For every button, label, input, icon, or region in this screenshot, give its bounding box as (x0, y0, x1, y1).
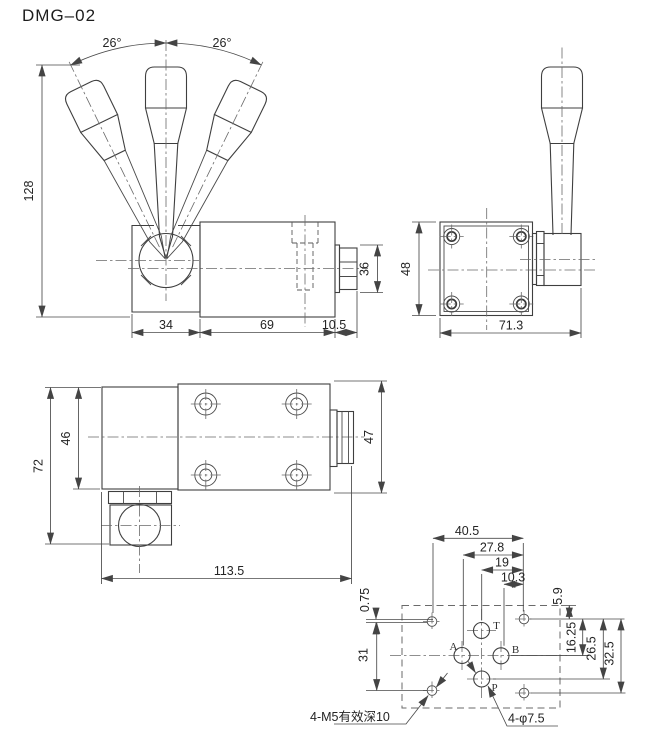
dim-mount-27-8: 27.8 (480, 541, 504, 555)
dim-mount-5-9: 5.9 (551, 587, 565, 604)
dim-72: 72 (32, 388, 110, 545)
dims-mounting-left: 0.75 31 (357, 588, 434, 691)
dim-mount-40-5: 40.5 (455, 524, 479, 538)
dim-front-height: 128 (22, 181, 36, 202)
dim-mount-32-5: 32.5 (603, 641, 617, 665)
lever-phantom-right (148, 53, 281, 268)
port-label-a: A (450, 641, 458, 653)
nut-top (330, 410, 354, 467)
port-circles: T A B P (450, 620, 520, 694)
dim-side-width: 71.3 (499, 319, 523, 333)
dim-top-body: 46 (59, 432, 73, 446)
nut-side (533, 232, 545, 286)
dim-mount-10-3: 10.3 (501, 571, 525, 585)
lever-side (542, 48, 583, 236)
top-view: 72 46 47 113.5 (32, 381, 388, 584)
dims-mounting-top: 40.5 27.8 19 10.3 (433, 524, 525, 646)
dim-46: 46 (59, 388, 100, 490)
lever-mount-side (520, 234, 598, 286)
dim-113-5: 113.5 (102, 466, 352, 584)
dim-top-nut: 47 (362, 430, 376, 444)
valve-body-side (428, 208, 598, 330)
dim-block-width: 34 (159, 318, 173, 332)
valve-body-top (88, 384, 364, 490)
technical-drawing-page: DMG–02 (0, 0, 650, 745)
port-label-p: P (491, 682, 497, 694)
port-label-t: T (493, 620, 500, 632)
dim-body-width: 69 (260, 318, 274, 332)
pivot-housing-top (101, 486, 180, 573)
mounting-pattern-view: T A B P 40.5 27.8 19 10.3 (310, 524, 626, 726)
dim-mount-31: 31 (357, 648, 371, 662)
dim-angle-right: 26° (213, 36, 232, 50)
front-view: 26° 26° 128 36 34 69 10.5 (22, 36, 383, 338)
dim-top-overall: 72 (32, 459, 46, 473)
dim-side-height: 48 (399, 262, 413, 276)
dim-48: 48 (399, 222, 436, 316)
page-title: DMG–02 (22, 6, 96, 25)
label-port-holes: 4-φ7.5 (508, 712, 545, 726)
lever-phantom-left (51, 53, 184, 268)
callout-m5: 4-M5有效深10 (310, 673, 448, 724)
valve-body-front (128, 215, 368, 327)
dmg02-drawing: DMG–02 (0, 0, 650, 745)
label-mounting-holes: 4-M5有效深10 (310, 709, 390, 724)
port-label-b: B (512, 644, 519, 656)
dim-nut-width: 10.5 (322, 318, 346, 332)
dim-mount-26-5: 26.5 (585, 636, 599, 660)
dim-36: 36 (358, 245, 384, 293)
dim-mount-0-75: 0.75 (358, 588, 372, 612)
dim-mount-16-25: 16.25 (565, 622, 579, 653)
side-view: 48 71.3 (399, 48, 598, 339)
dim-angle-left: 26° (103, 36, 122, 50)
dims-mounting-right: 5.9 16.25 26.5 32.5 (493, 587, 626, 693)
dim-mount-19: 19 (495, 556, 509, 570)
dim-128: 128 (22, 65, 130, 317)
dim-top-length: 113.5 (214, 564, 244, 578)
dim-71-3: 71.3 (440, 288, 581, 338)
dim-nut-height: 36 (358, 262, 372, 276)
